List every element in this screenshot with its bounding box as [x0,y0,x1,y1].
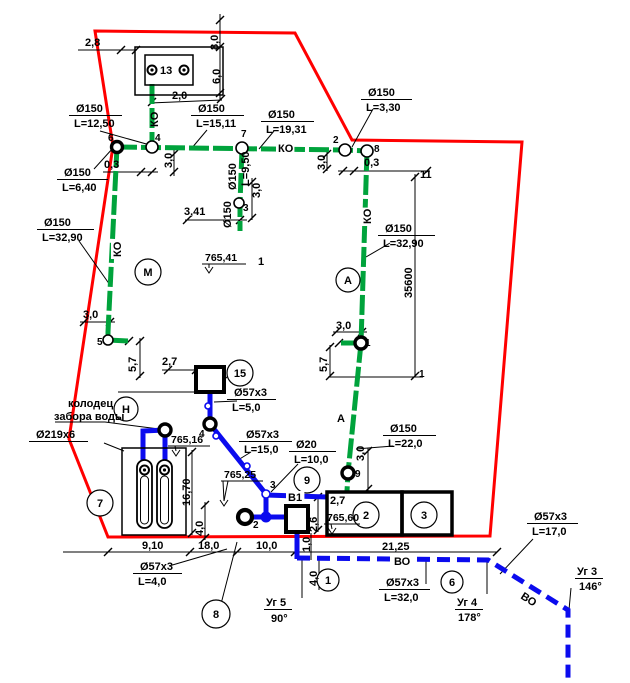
annotation-text: А [337,413,345,425]
text-group: 2,6 [308,517,320,532]
annotation-text: 0,3 [364,157,379,169]
text-group: забора воды [54,411,124,423]
pipe-size-label: Ø150 [44,217,71,229]
ref-bubble-label: 2 [363,510,369,522]
ref-bubble-label: А [344,275,352,287]
text-group: 0,3 [364,157,379,169]
pipe-length-label: L=17,0 [532,526,567,538]
annotation-text: 178° [458,612,481,624]
annotation-text: 0,3 [104,159,119,171]
annotation-text: 4,0 [308,571,320,586]
ref-bubble-label: 15 [234,368,246,380]
annotation-text: 9,10 [142,540,163,552]
pipe-size-label: Ø57x3 [534,511,567,523]
ref-bubble-label: 3 [421,510,427,522]
text-group: 1 [365,338,371,349]
pipe-node-open [339,144,351,156]
pipe-size-label: Ø150 [385,223,412,235]
text-group: КО [361,208,374,226]
text-group: Уг 3 [575,566,603,579]
text-group: 2,8 [85,37,100,49]
text-group: КО [149,111,161,127]
well-casing [161,476,169,524]
text-group: 1,0 [301,537,313,552]
bolt-dot-icon [150,68,153,71]
text-group: 5,7 [318,357,330,372]
annotation-text: 16,70 [181,478,193,506]
pipe-length-label: L=12,50 [74,118,115,130]
bolt-dot-icon [163,468,166,471]
annotation-text: L=9,50 [240,151,252,186]
pipe-node-pump [238,510,252,524]
text-group: 9 [355,469,361,480]
text-group: 4 [155,133,161,144]
annotation-text: 4,0 [194,521,206,536]
pipe-node-ring [204,418,216,430]
pipe-length-label: L=15,0 [244,444,279,456]
text-group: КО [111,241,124,259]
text-group: 3,0 [163,153,175,168]
annotation-text: 10,0 [256,540,277,552]
text-group: 146° [579,581,602,593]
annotation-text: Уг 4 [457,597,478,609]
text-group: 3 [270,480,276,491]
pipe-size-label: Ø20 [296,439,317,451]
text-group: 11 [420,169,432,181]
text-group: 2,7 [162,356,177,368]
text-group: А [337,413,345,425]
text-group: Уг 4 [455,597,483,610]
annotation-text: 4 [155,133,161,144]
leader-line [569,588,571,610]
ref-bubble-label: 6 [449,577,455,589]
text-group: 13 [160,65,172,77]
annotation-text: КО [112,241,124,257]
bolt-dot-icon [182,68,185,71]
elevation-value: 765,60 [327,512,359,524]
annotation-text: КО [278,143,294,155]
annotation-text: 3,41 [184,206,205,218]
leader-line [221,542,237,604]
text-group: 3,0 [316,155,328,170]
chamber-15-square [196,367,224,392]
annotation-text: 2,6 [308,517,320,532]
text-group: 2,0 [172,90,187,102]
pipe-size-label: Ø150 [198,103,225,115]
elevation-leader [223,481,224,501]
pipe-length-label: L=32,90 [383,238,424,250]
pipe-node-open [361,145,373,157]
text-group: 3 [243,203,249,214]
ref-bubble-label: 8 [213,609,219,621]
text-group: 35600 [403,267,415,298]
annotation-text: колодец [68,398,113,410]
annotation-text: 6,0 [211,69,223,84]
text-group: 2,7 [330,495,345,507]
annotation-text: Уг 5 [266,597,286,609]
annotation-text: 3,0 [83,309,98,321]
text-group: Ø150 [227,163,239,190]
annotation-text: 2 [333,135,339,146]
text-group: 9,10 [142,540,163,552]
text-group: 0,3 [104,159,119,171]
annotation-text: Ø150 [227,163,239,190]
text-group: 3,41 [184,206,205,218]
annotation-text: 8,0 [209,35,221,50]
text-group: 16,70 [181,478,193,506]
text-group: 5 [97,337,103,348]
annotation-text: 2,0 [172,90,187,102]
annotation-text: 2,7 [162,356,177,368]
annotation-text: КО [362,208,374,224]
pipe-length-label: L=22,0 [388,438,423,450]
annotation-text: 5,7 [318,357,330,372]
text-group: Уг 5 [264,597,292,610]
dim-tick [217,95,225,103]
wellhouse-rect [122,448,186,535]
elevation-value: 765,16 [171,434,203,446]
text-group: 6,0 [211,69,223,84]
pipe-size-label: Ø219x6 [36,429,75,441]
annotation-text: Ø150 [222,201,234,228]
pipe-size-label: Ø150 [268,109,295,121]
text-group: 3,0 [251,183,263,198]
pipe-length-label: L=32,90 [42,232,83,244]
text-group: Ø150 [222,201,234,228]
pipe-size-label: Ø57x3 [386,577,419,589]
pipe-size-label: Ø57x3 [140,561,173,573]
text-group: 10,0 [256,540,277,552]
annotation-text: Уг 3 [577,566,597,578]
annotation-text: 3 [243,203,249,214]
annotation-text: 6 [108,133,114,144]
annotation-text: 11 [420,169,432,181]
pipe-node-blue-open [205,403,211,409]
annotation-text: 1 [365,338,371,349]
pipe-size-label: Ø57x3 [246,429,279,441]
pipe-node-blue-open [262,490,270,498]
pipe-node-open [103,335,113,345]
pipe-size-label: Ø150 [64,167,91,179]
pipe-length-label: L=4,0 [138,576,166,588]
text-group: 21,25 [382,541,410,553]
text-group: 2 [253,520,259,531]
text-group: 3,0 [355,446,367,461]
annotation-text: 9 [355,469,361,480]
annotation-text: 1 [258,256,264,268]
annotation-text: 3,0 [163,153,175,168]
pipe-length-label: L=5,0 [232,402,260,414]
annotation-text: 90° [271,613,288,625]
text-group: 7 [241,129,247,140]
leader-line [104,443,124,451]
bolt-dot-icon [143,468,146,471]
text-group: 3,0 [83,309,98,321]
annotation-text: 5 [97,337,103,348]
text-group: В1 [286,491,304,504]
text-group: 2 [333,135,339,146]
annotation-text: 21,25 [382,541,410,553]
valve-square [286,506,308,532]
ref-bubble-label: 9 [304,475,310,487]
site-plan-drawing: МАН715923168Ø150L=12,50Ø150L=15,11Ø150L=… [0,0,630,683]
pipe-node-blue-open [213,433,219,439]
pipe-length-label: L=3,30 [366,102,401,114]
text-group: 1 [258,256,264,268]
text-group: колодец [68,398,113,410]
ref-bubble-label: 1 [325,575,331,587]
pipe-node-ring [159,424,171,436]
annotation-text: 7 [241,129,247,140]
text-group: 18,0 [198,540,219,552]
pipe-length-label: L=19,31 [266,124,307,136]
pipe-length-label: L=32,0 [384,592,419,604]
text-group: 4,0 [308,571,320,586]
text-group: КО [276,142,294,155]
text-group: ВО [392,555,411,568]
elevation-stem [331,524,332,529]
text-group: 8 [374,144,380,155]
annotation-text: 2,8 [85,37,100,49]
text-group: 4,0 [194,521,206,536]
elevation-stem [224,481,228,501]
annotation-text: КО [149,111,161,127]
annotation-text: 8 [374,144,380,155]
pipe-size-label: Ø57x3 [234,387,267,399]
pipe-size-label: Ø150 [390,423,417,435]
annotation-text: 3,0 [336,320,351,332]
pipe-size-label: Ø150 [76,103,103,115]
well-casing [141,476,149,524]
pipe-length-label: L=10,0 [294,454,329,466]
elevation-stem [175,446,176,451]
annotation-text: 1 [419,369,425,380]
elevation-value: 765,25 [224,469,256,481]
ref-bubble-label: М [143,267,152,279]
annotation-text: 2 [253,520,259,531]
annotation-text: 1,0 [301,537,313,552]
annotation-text: 3 [270,480,276,491]
text-group: 1 [419,369,425,380]
pipe-node-blue-fill [261,512,271,522]
text-group: 90° [271,613,288,625]
text-group: L=9,50 [240,151,252,186]
annotation-text: 5,7 [127,357,139,372]
pipe-size-label: Ø150 [368,87,395,99]
text-group: 6 [108,133,114,144]
annotation-text: забора воды [54,411,124,423]
annotation-text: 35600 [403,267,415,298]
text-group: 5,7 [127,357,139,372]
text-group: 8,0 [209,35,221,50]
annotation-text: 18,0 [198,540,219,552]
pipe-node-ring [342,467,354,479]
text-group: 3,0 [336,320,351,332]
text-group: 178° [458,612,481,624]
annotation-text: 13 [160,65,172,77]
annotation-text: 146° [579,581,602,593]
annotation-text: 2,7 [330,495,345,507]
ref-bubble-label: 7 [97,498,103,510]
site-plan-page: МАН715923168Ø150L=12,50Ø150L=15,11Ø150L=… [0,0,630,683]
pipe-length-label: L=6,40 [62,182,97,194]
pipe-length-label: L=15,11 [196,118,236,130]
annotation-text: ВО [394,556,411,568]
annotation-text: 3,0 [355,446,367,461]
annotation-text: В1 [288,492,302,504]
elevation-value: 765,41 [205,252,237,264]
annotation-text: 3,0 [251,183,263,198]
annotation-text: 3,0 [316,155,328,170]
